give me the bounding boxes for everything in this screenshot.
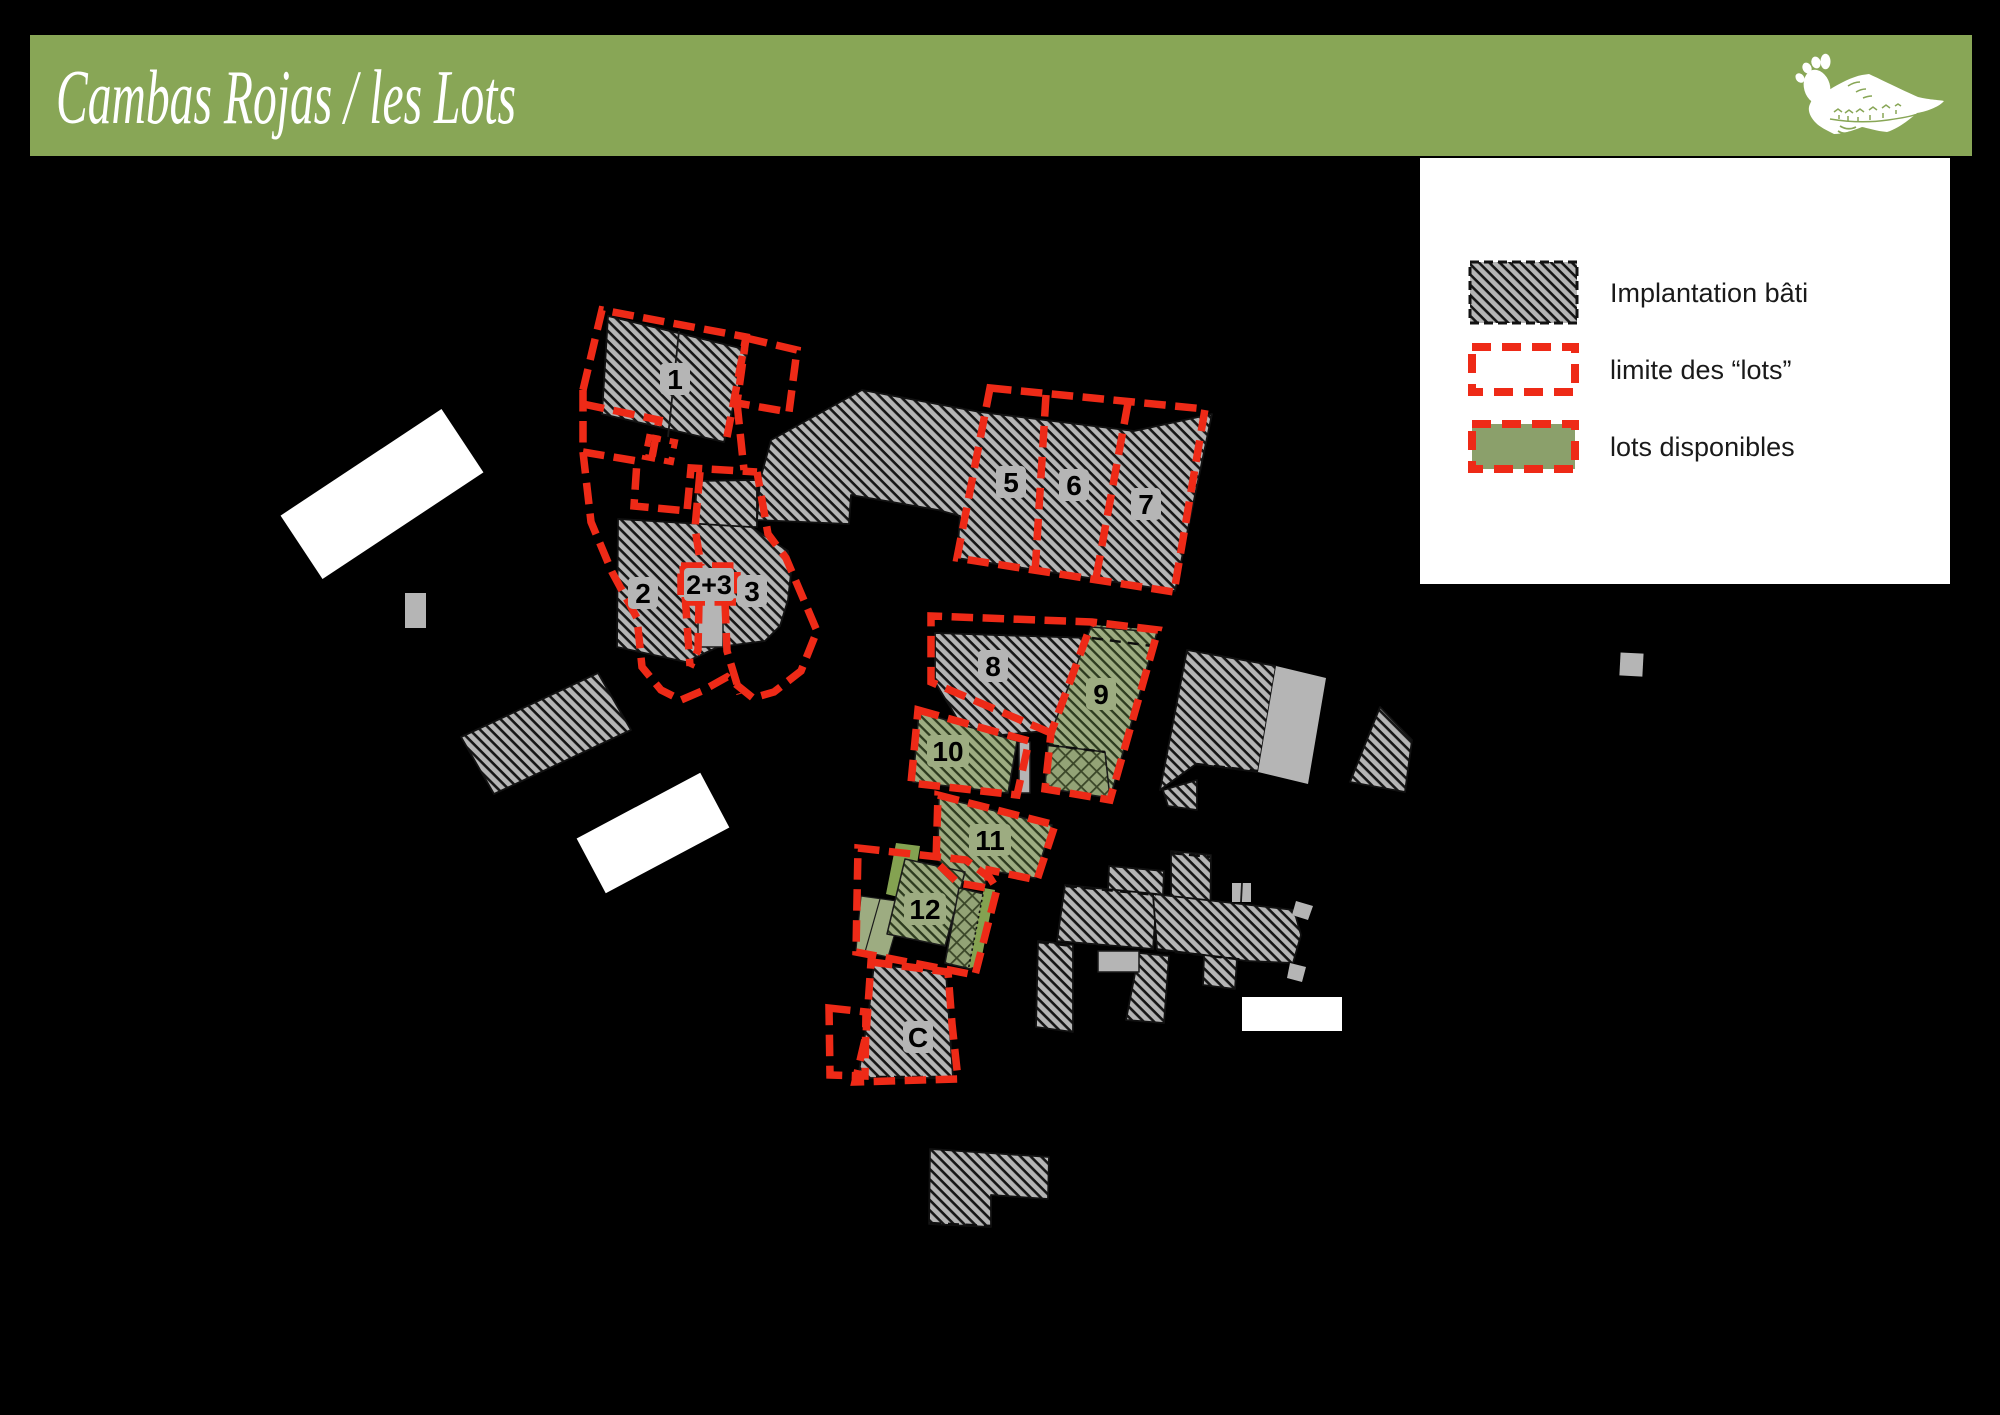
svg-text:5: 5 xyxy=(1003,467,1019,498)
svg-text:6: 6 xyxy=(1066,470,1082,501)
svg-text:lots disponibles: lots disponibles xyxy=(1610,432,1795,462)
svg-text:2: 2 xyxy=(635,578,651,609)
svg-text:11: 11 xyxy=(975,825,1005,856)
svg-text:10: 10 xyxy=(932,736,963,767)
svg-text:12: 12 xyxy=(909,894,940,925)
svg-text:C: C xyxy=(908,1022,928,1053)
svg-text:9: 9 xyxy=(1093,679,1109,710)
svg-text:1: 1 xyxy=(667,364,683,395)
svg-text:Implantation bâti: Implantation bâti xyxy=(1610,278,1808,308)
svg-text:2+3: 2+3 xyxy=(686,570,732,600)
svg-text:Cambas Rojas / les Lots: Cambas Rojas / les Lots xyxy=(56,54,516,140)
svg-text:7: 7 xyxy=(1138,489,1154,520)
svg-text:8: 8 xyxy=(985,651,1001,682)
svg-text:3: 3 xyxy=(744,576,760,607)
svg-text:limite des “lots”: limite des “lots” xyxy=(1610,355,1792,385)
